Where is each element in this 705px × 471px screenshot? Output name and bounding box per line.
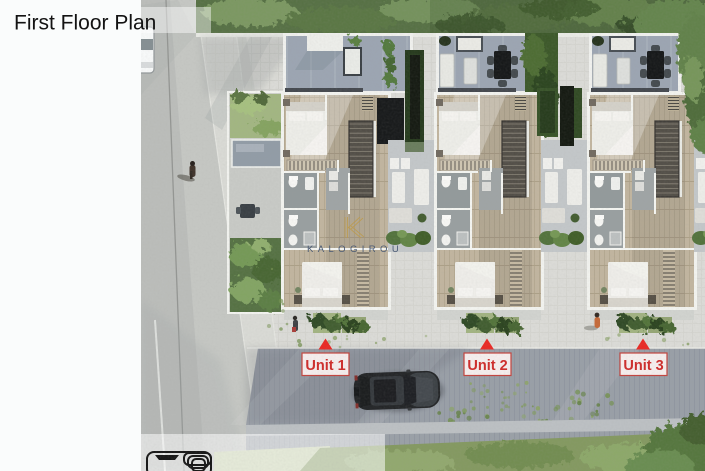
svg-text:First Floor Plan: First Floor Plan: [14, 12, 156, 35]
